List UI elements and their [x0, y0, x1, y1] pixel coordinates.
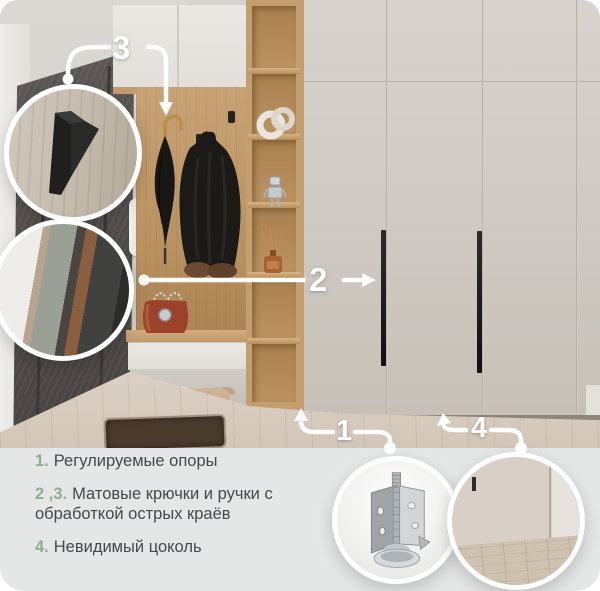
ring-sculpture: [254, 102, 296, 140]
adjustable-foot-circle: [332, 456, 460, 584]
leather-bag: [138, 288, 192, 336]
callout-number-1: 1: [336, 417, 352, 446]
bench-drawer: [128, 342, 248, 370]
product-infographic: 1.Регулируемые опоры 2 ,3.Матовые крючки…: [0, 0, 600, 591]
legend-text-1: Регулируемые опоры: [54, 452, 218, 470]
legend-text-2-3: Матовые крючки и ручки с обработкой остр…: [35, 485, 273, 522]
plinth-circle: [447, 452, 585, 590]
legend-item-4: 4.Невидимый цоколь: [35, 538, 327, 557]
wardrobe-seam: [482, 0, 484, 415]
cubby: [252, 278, 296, 338]
plinth-handle-notch: [472, 477, 476, 491]
callout-number-4: 4: [471, 414, 487, 443]
legend-item-2-3: 2 ,3.Матовые крючки и ручки с обработкой…: [35, 485, 327, 524]
wardrobe-seam: [386, 0, 388, 415]
cabinet-seam: [177, 5, 179, 87]
legend-item-1: 1.Регулируемые опоры: [35, 452, 327, 471]
hallway-photo: [0, 0, 600, 448]
legend-list: 1.Регулируемые опоры 2 ,3.Матовые крючки…: [35, 452, 327, 572]
callout-number-2: 2: [309, 263, 327, 296]
wardrobe-handle: [477, 231, 482, 373]
legend-num-2-3: 2 ,3.: [35, 485, 67, 503]
upper-cabinets: [113, 5, 249, 94]
wall-corner: [586, 385, 600, 415]
plinth-floor: [447, 535, 585, 590]
card: 1.Регулируемые опоры 2 ,3.Матовые крючки…: [0, 0, 600, 591]
hook-closeup-circle: [4, 84, 142, 222]
legend-num-4: 4.: [35, 538, 49, 556]
cubby: [252, 6, 296, 68]
adjustable-foot-icon: [355, 469, 437, 573]
cubby: [252, 344, 296, 402]
legend-text-4: Невидимый цоколь: [54, 538, 202, 556]
coat-hook: [228, 111, 235, 123]
coat: [176, 128, 246, 280]
wardrobe: [304, 0, 600, 420]
black-hook-icon: [37, 107, 113, 203]
wardrobe-seam: [576, 0, 578, 415]
wardrobe-seam: [304, 81, 600, 83]
legend-num-1: 1.: [35, 452, 49, 470]
callout-number-3: 3: [112, 31, 130, 64]
wardrobe-handle: [381, 230, 386, 366]
reed-diffuser: [258, 226, 288, 274]
doormat: [106, 416, 225, 448]
robot-figurine: [263, 175, 287, 209]
